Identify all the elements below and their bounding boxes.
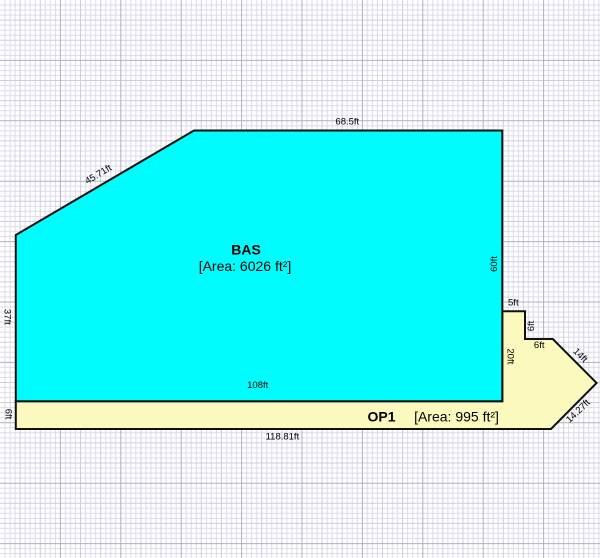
svg-text:20ft: 20ft [504, 348, 515, 364]
svg-text:OP1: OP1 [367, 409, 395, 425]
svg-text:118.81ft: 118.81ft [266, 431, 300, 442]
svg-text:6ft: 6ft [526, 320, 537, 331]
svg-text:6ft: 6ft [3, 409, 14, 420]
svg-text:60ft: 60ft [489, 256, 500, 272]
svg-text:[Area: 995 ft²]: [Area: 995 ft²] [414, 408, 499, 424]
svg-text:5ft: 5ft [508, 297, 519, 308]
svg-text:6ft: 6ft [534, 340, 545, 351]
svg-text:37ft: 37ft [1, 309, 12, 325]
svg-text:[Area: 6026 ft²]: [Area: 6026 ft²] [199, 258, 292, 274]
svg-text:BAS: BAS [231, 242, 261, 258]
svg-text:108ft: 108ft [247, 380, 268, 391]
svg-text:68.5ft: 68.5ft [335, 117, 359, 128]
